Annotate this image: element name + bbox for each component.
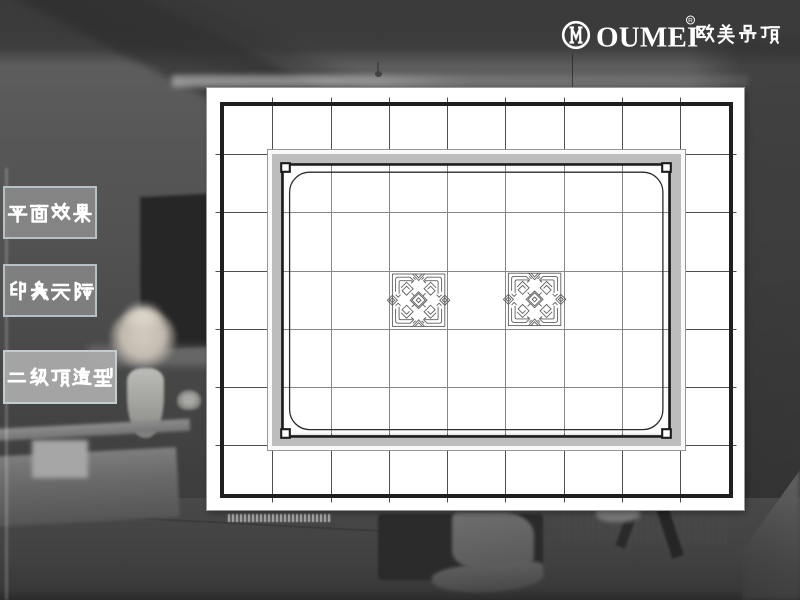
svg-text:R: R [688,18,693,25]
svg-text:OUMEI: OUMEI [596,22,699,54]
